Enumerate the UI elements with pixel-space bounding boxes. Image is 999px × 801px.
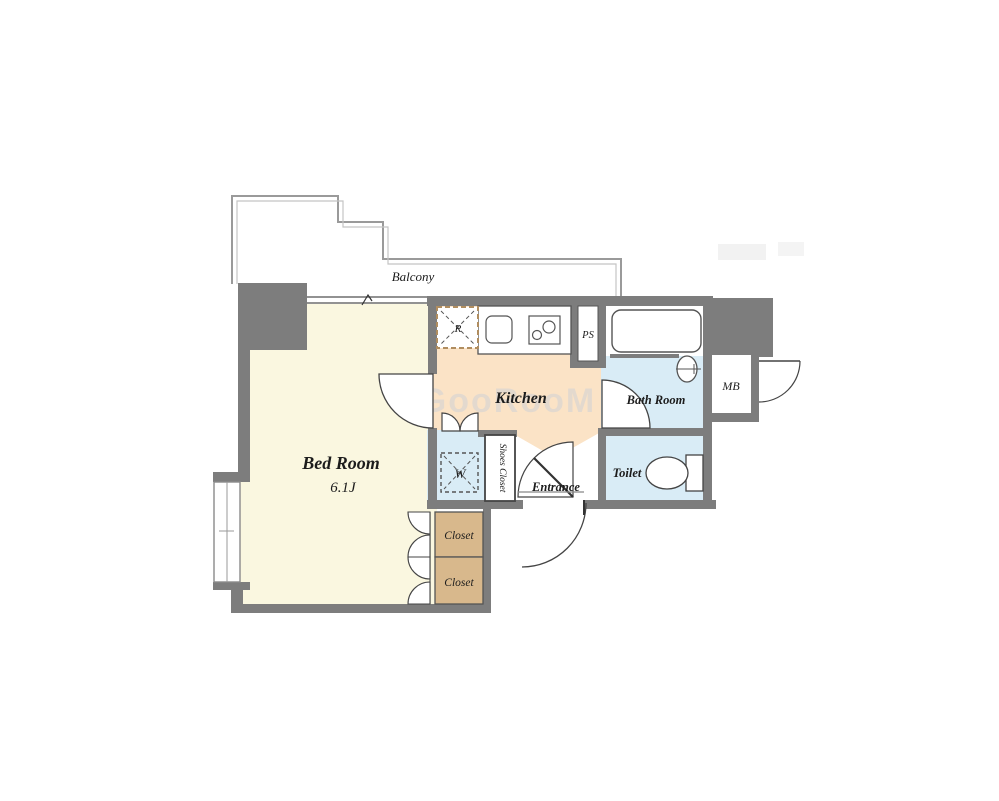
floor-plan-svg: GooRooM <box>0 0 999 801</box>
wall-top-right-block <box>706 298 773 357</box>
mb-door-swing <box>759 361 800 402</box>
floor-plan-image: GooRooM <box>0 0 999 801</box>
wall-left <box>238 348 250 474</box>
stove-burner-small <box>533 331 542 340</box>
toilet-label: Toilet <box>613 466 642 480</box>
wall-pillar-top-left <box>238 283 307 350</box>
kitchen-sink <box>486 316 512 343</box>
wall-bedroom-kitchen-upper <box>428 300 437 374</box>
bedroom-label: Bed Room <box>301 453 380 473</box>
closet-upper-label: Closet <box>444 530 474 542</box>
balcony-label: Balcony <box>392 269 435 284</box>
stove-burner-large <box>543 321 555 333</box>
wall-kitchen-bath <box>598 300 606 365</box>
refrigerator-label: R <box>454 323 462 335</box>
watermark-smudge-2 <box>778 242 804 256</box>
wall-below-mb <box>706 413 759 422</box>
wall-bath-toilet <box>598 428 711 436</box>
pipe-space-label: PS <box>581 330 594 341</box>
wall-bath-right <box>703 306 712 428</box>
washer-label: W <box>455 466 467 481</box>
wall-toilet-right <box>703 428 712 509</box>
bathtub <box>612 310 701 352</box>
wall-bottom-left <box>231 604 491 613</box>
shoes-closet-label: Shoes Closet <box>497 444 507 493</box>
toilet-bowl <box>646 457 688 489</box>
meter-box-label: MB <box>721 379 740 393</box>
wall-toilet-left <box>598 436 606 503</box>
bedroom-size-label: 6.1J <box>330 480 357 496</box>
wall-mb-right <box>751 355 759 413</box>
closet-lower-label: Closet <box>444 577 474 589</box>
entry-door-swing <box>522 503 586 567</box>
bathroom-label: Bath Room <box>626 393 686 407</box>
wall-bedroom-kitchen-lower <box>428 428 437 509</box>
entrance-label: Entrance <box>531 480 580 494</box>
wall-window-stub-top <box>213 472 250 482</box>
kitchen-label: Kitchen <box>494 390 547 407</box>
watermark-smudge-1 <box>718 244 766 260</box>
wall-closet-right <box>483 500 491 613</box>
